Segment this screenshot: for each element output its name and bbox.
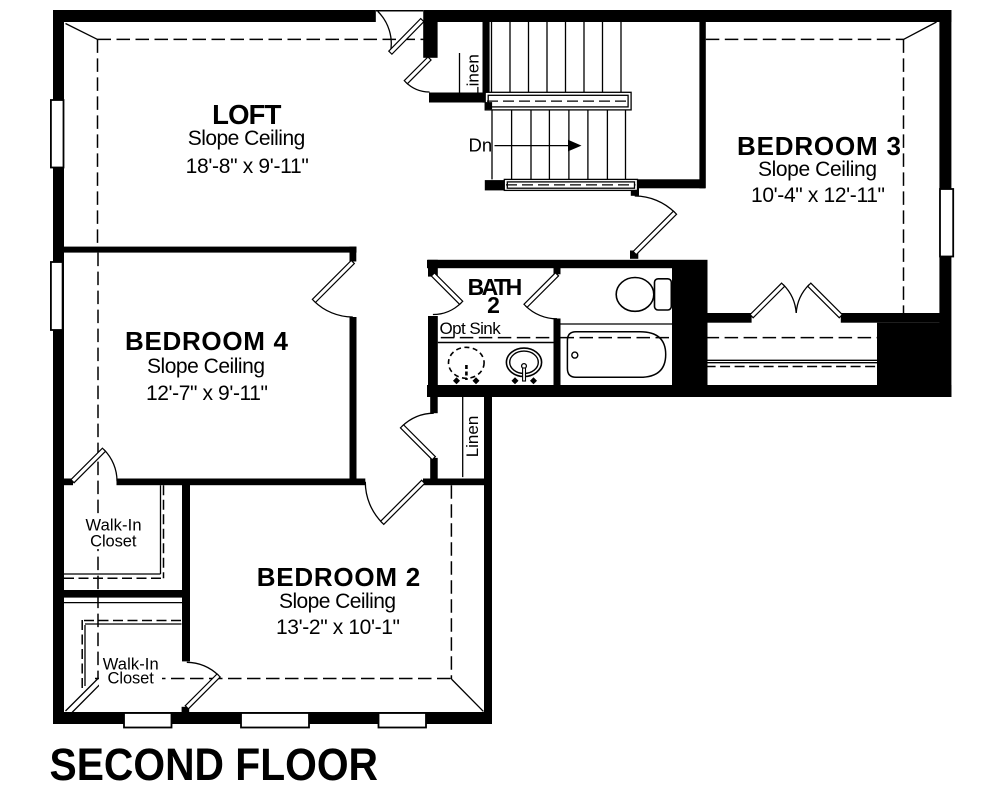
svg-text:Opt Sink: Opt Sink	[440, 319, 502, 338]
svg-text:Closet: Closet	[90, 533, 137, 551]
svg-text:Slope Ceiling: Slope Ceiling	[279, 590, 396, 613]
svg-text:Linen: Linen	[463, 416, 482, 458]
svg-text:Linen: Linen	[464, 54, 483, 96]
svg-text:BEDROOM 3: BEDROOM 3	[737, 131, 901, 161]
svg-text:BEDROOM 2: BEDROOM 2	[257, 562, 421, 592]
svg-text:13'-2" x 10'-1": 13'-2" x 10'-1"	[276, 616, 400, 639]
svg-text:10'-4" x 12'-11": 10'-4" x 12'-11"	[751, 184, 885, 207]
svg-text:Slope Ceiling: Slope Ceiling	[758, 158, 877, 181]
svg-text:Closet: Closet	[108, 670, 155, 688]
svg-text:2: 2	[487, 292, 500, 318]
svg-text:Dn: Dn	[469, 134, 493, 155]
svg-text:SECOND FLOOR: SECOND FLOOR	[50, 739, 379, 790]
svg-text:BEDROOM 4: BEDROOM 4	[125, 326, 289, 356]
svg-text:18'-8" x 9'-11": 18'-8" x 9'-11"	[186, 155, 309, 178]
svg-text:12'-7" x 9'-11": 12'-7" x 9'-11"	[146, 382, 268, 405]
svg-text:Slope Ceiling: Slope Ceiling	[188, 127, 306, 150]
svg-text:Slope Ceiling: Slope Ceiling	[147, 355, 265, 378]
svg-text:LOFT: LOFT	[212, 99, 281, 130]
